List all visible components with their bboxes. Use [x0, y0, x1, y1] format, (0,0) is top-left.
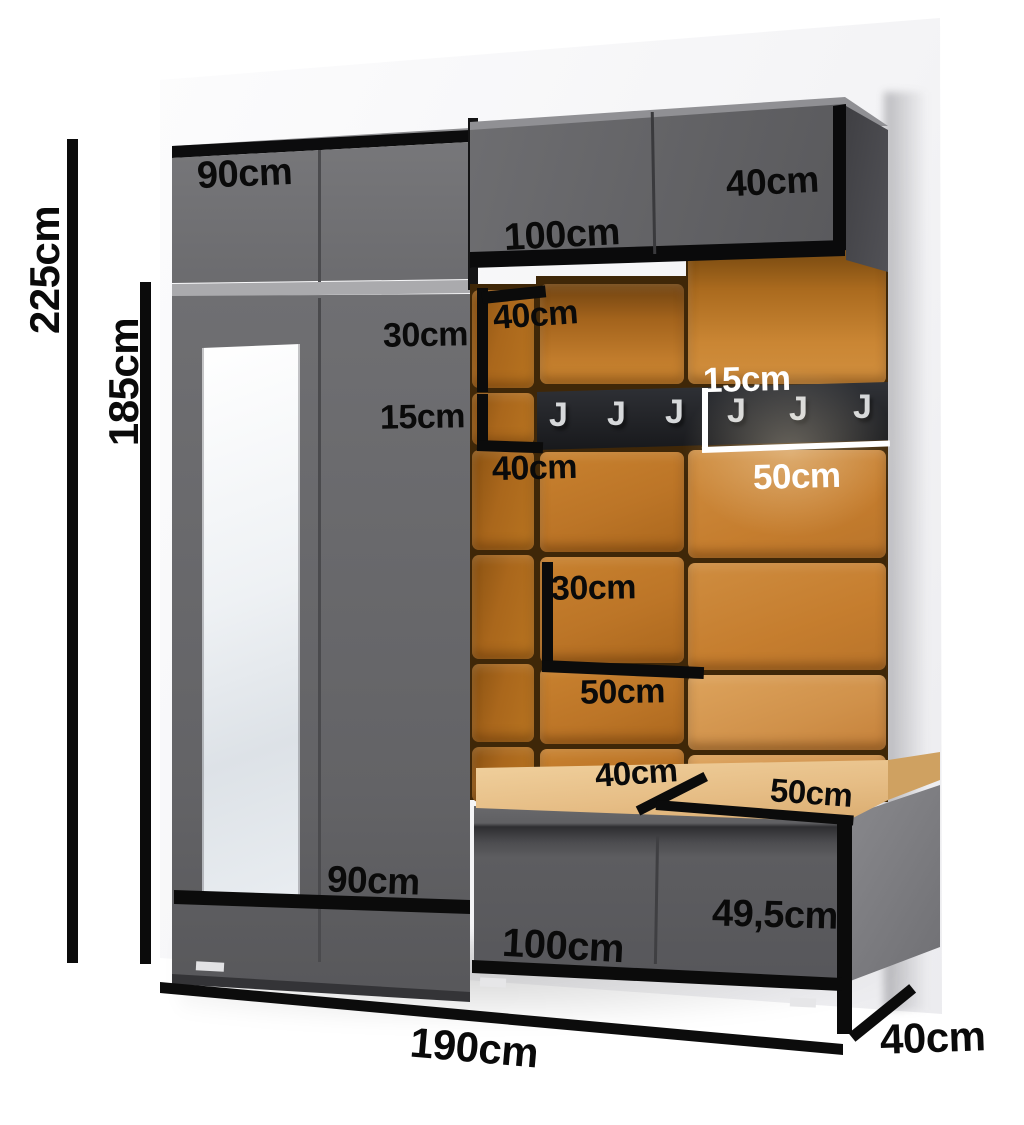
dim-line-bench-height — [837, 820, 852, 1034]
bench-foot — [790, 997, 816, 1007]
label-seat-left-width: 40cm — [594, 753, 679, 793]
wall-cabinet-right-edge — [832, 100, 848, 256]
label-total-width: 190cm — [408, 1020, 540, 1075]
label-panel-top-height: 30cm — [383, 317, 469, 354]
label-rail-height: 15cm — [703, 361, 791, 400]
bracket-hook-panel-vertical — [477, 394, 488, 446]
label-total-depth: 40cm — [879, 1014, 986, 1061]
label-panel-mid-width: 40cm — [492, 450, 578, 488]
wardrobe-foot — [196, 961, 224, 971]
coat-hook-icon: J — [607, 395, 626, 434]
upholstered-panel — [688, 563, 886, 670]
wardrobe-door-seam — [318, 298, 321, 962]
label-wardrobe-width: 90cm — [326, 860, 420, 902]
label-panel-lower-height: 30cm — [551, 570, 637, 607]
upholstered-panel — [472, 555, 534, 659]
furniture-dimension-diagram: J J J J J J 225cm 185cm 90cm 100cm 40cm — [0, 0, 1024, 1125]
label-hook-panel-height: 15cm — [380, 399, 466, 436]
label-overall-height: 225cm — [23, 205, 69, 335]
coat-hook-icon: J — [549, 396, 568, 435]
upholstered-panel — [688, 675, 886, 750]
label-panel-lower-width: 50cm — [580, 674, 666, 711]
label-panel-top-width: 40cm — [492, 295, 579, 336]
wall-cabinet-side — [846, 102, 890, 274]
upholstered-panel — [472, 664, 534, 742]
label-top-cabinet-width: 90cm — [196, 153, 293, 197]
label-wall-cabinet-width: 100cm — [503, 213, 621, 259]
label-wall-cabinet-right-width: 40cm — [725, 161, 820, 204]
label-hook-panel-width: 50cm — [753, 458, 841, 497]
label-bench-height: 49,5cm — [712, 894, 839, 937]
label-bench-width: 100cm — [501, 923, 625, 971]
top-cabinet-door-seam — [318, 150, 321, 282]
label-seat-right-width: 50cm — [769, 773, 854, 813]
mirror — [202, 342, 300, 904]
label-wardrobe-height: 185cm — [102, 317, 148, 447]
